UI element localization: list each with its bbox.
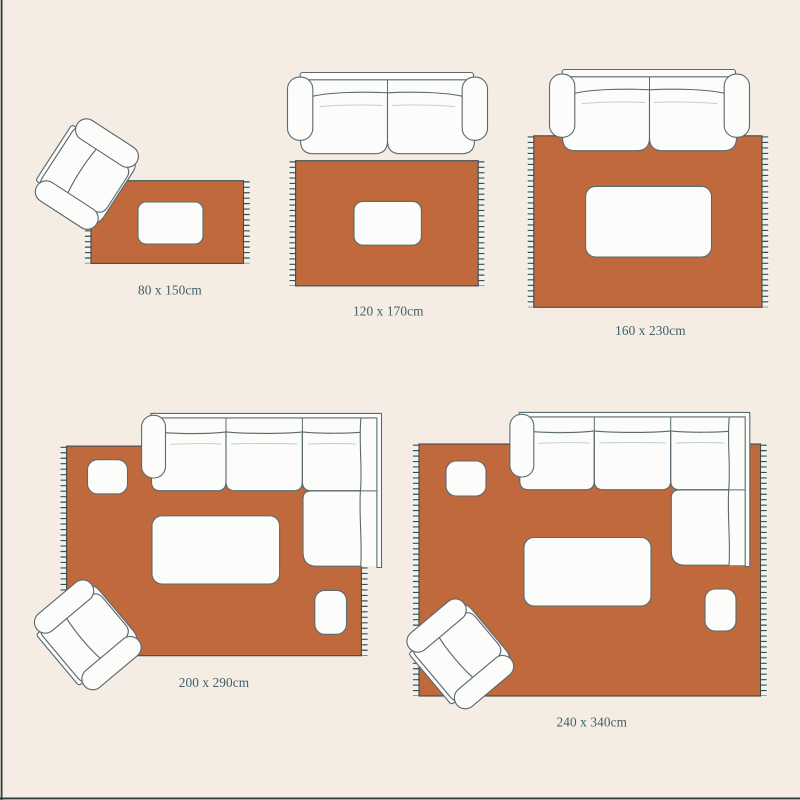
- svg-text:160 x 230cm: 160 x 230cm: [615, 323, 686, 338]
- svg-text:120 x 170cm: 120 x 170cm: [353, 304, 424, 319]
- svg-text:200 x 290cm: 200 x 290cm: [179, 675, 250, 690]
- svg-text:80 x 150cm: 80 x 150cm: [138, 283, 202, 298]
- svg-text:240 x 340cm: 240 x 340cm: [557, 715, 628, 730]
